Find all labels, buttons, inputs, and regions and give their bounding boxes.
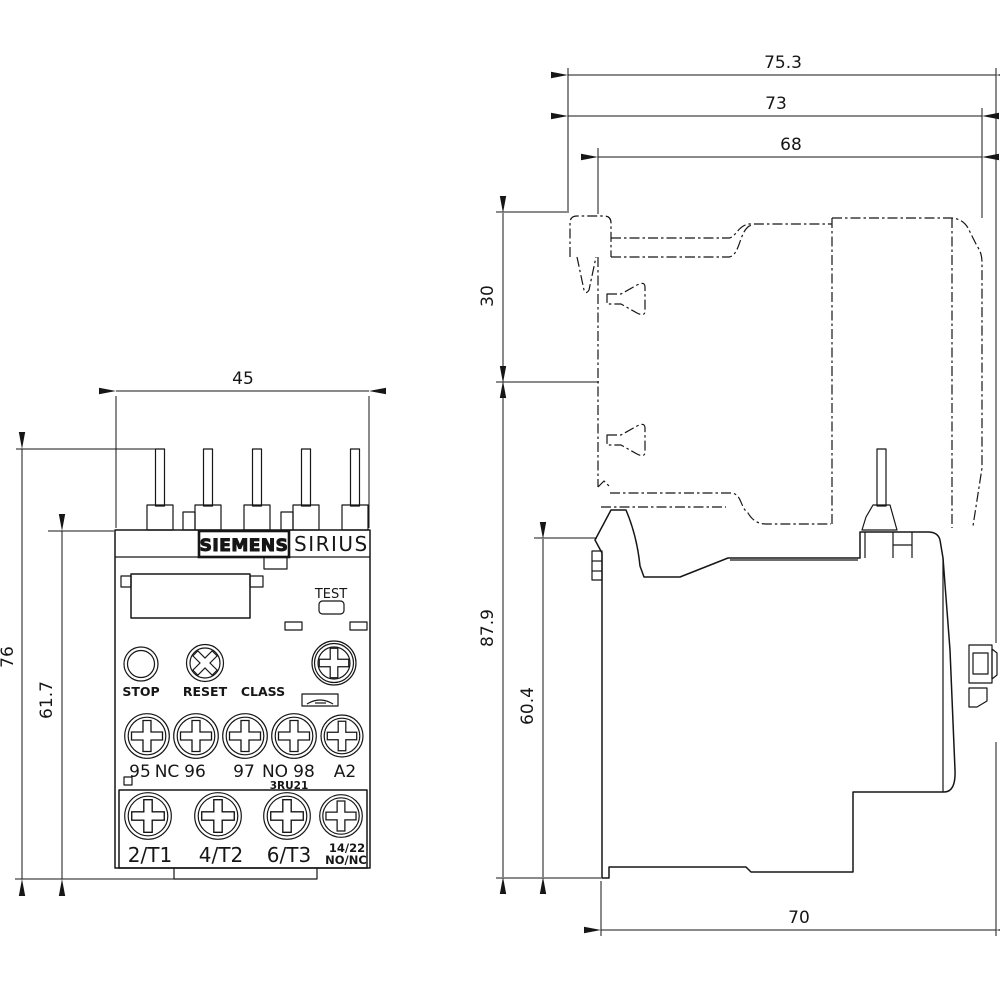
- terminal-label-98: 98: [293, 762, 315, 782]
- screw-terminal-95: [125, 714, 170, 759]
- terminal-label-no: NO: [262, 762, 288, 782]
- contactor-top-step-lower: [611, 225, 752, 257]
- terminal-label-a2: A2: [334, 762, 356, 782]
- clip-lug: [607, 283, 645, 314]
- terminal-label-97: 97: [233, 762, 255, 782]
- contact-window: [350, 622, 367, 630]
- dim-label-60.4: 60.4: [518, 687, 538, 725]
- screw-terminal-96: [174, 714, 219, 759]
- terminal-label-2t1: 2/T1: [128, 843, 172, 867]
- relay-side-outline: [592, 449, 997, 878]
- brand-tab: [264, 557, 287, 569]
- pin: [195, 449, 221, 530]
- screw-terminal-t2: [195, 793, 242, 840]
- terminal-row-1: 95 NC 96 97 NO 98 A2 3RU21: [124, 714, 363, 792]
- contactor-lower-peak: [598, 481, 610, 487]
- pin: [293, 449, 319, 530]
- relay-body-profile: [595, 510, 955, 878]
- dim-front-body-height: 61.7: [37, 531, 114, 879]
- terminal-label-4t2: 4/T2: [199, 843, 243, 867]
- rail-hook: [577, 257, 596, 293]
- class-label: CLASS: [241, 684, 285, 699]
- dim-label-87.9: 87.9: [478, 609, 498, 647]
- pin: [147, 449, 173, 530]
- brand-area: SIEMENS SIRIUS: [199, 531, 369, 569]
- dim-total-height: 87.9: [478, 383, 601, 878]
- contactor-phantom-outline: [570, 216, 982, 528]
- dim-body-height: 60.4: [518, 538, 597, 877]
- dim-label-68: 68: [780, 135, 802, 155]
- side-view: 75.3 73 68 30 87.9 60.4: [478, 53, 997, 936]
- side-screw-terminal: [969, 645, 997, 707]
- terminal-row-2: 2/T1 4/T2 6/T3 14/22 NO/NC: [119, 790, 367, 868]
- dim-label-76: 76: [0, 646, 18, 668]
- dim-label-75.3: 75.3: [764, 53, 802, 73]
- clip-lug: [607, 424, 645, 455]
- dim-rail-offset-30: 30: [478, 212, 599, 382]
- connection-pins: [147, 449, 368, 530]
- stop-label: STOP: [122, 684, 159, 699]
- dim-depth-73: 73: [568, 94, 982, 218]
- sirius-label: SIRIUS: [294, 532, 369, 556]
- left-terminal-block: [592, 551, 602, 580]
- pin-tab: [183, 512, 195, 530]
- dim-label-61.7: 61.7: [37, 681, 57, 719]
- front-view: 45 76 61.7: [0, 369, 370, 879]
- pin: [244, 449, 270, 530]
- contactor-block: [832, 218, 982, 526]
- label-window: [121, 574, 263, 618]
- test-label: TEST: [314, 587, 347, 602]
- dim-label-70: 70: [788, 908, 810, 928]
- contactor-top-step: [611, 224, 832, 238]
- dim-label-73: 73: [765, 94, 787, 114]
- dim-label-45: 45: [232, 369, 254, 389]
- dimension-drawing-page: 45 76 61.7: [0, 0, 1000, 1000]
- screw-terminal-t1: [125, 793, 172, 840]
- side-pin: [862, 449, 897, 530]
- terminal-label-aux2: NO/NC: [325, 853, 367, 867]
- screw-terminal-aux: [320, 795, 363, 838]
- dim-label-30: 30: [478, 285, 498, 307]
- reset-knob: [186, 644, 225, 683]
- screw-terminal-t3: [264, 793, 311, 840]
- siemens-logo: SIEMENS: [200, 536, 289, 556]
- test-button: [319, 601, 344, 614]
- stop-button: [124, 647, 158, 681]
- dim-bottom-depth: 70: [601, 742, 996, 936]
- terminal-label-6t3: 6/T3: [267, 843, 311, 867]
- bottom-tab: [174, 868, 317, 879]
- contact-window: [285, 622, 302, 630]
- pin-tab: [281, 512, 293, 530]
- dial-indicator: [302, 694, 338, 706]
- terminal-label-96: 96: [184, 762, 206, 782]
- screw-terminal-98: [272, 714, 317, 759]
- adjustment-dial: [312, 641, 356, 685]
- terminal-label-nc: NC: [155, 762, 180, 782]
- reset-label: RESET: [183, 684, 228, 699]
- dim-depth-68: 68: [598, 135, 982, 214]
- din-rail-tab: [570, 216, 611, 257]
- contactor-bottom-edge: [610, 493, 831, 524]
- screw-terminal-a2: [321, 715, 363, 757]
- pin: [342, 449, 368, 530]
- screw-terminal-97: [223, 714, 268, 759]
- mounting-bracket: [865, 532, 912, 558]
- dimension-drawing: 45 76 61.7: [0, 0, 1000, 1000]
